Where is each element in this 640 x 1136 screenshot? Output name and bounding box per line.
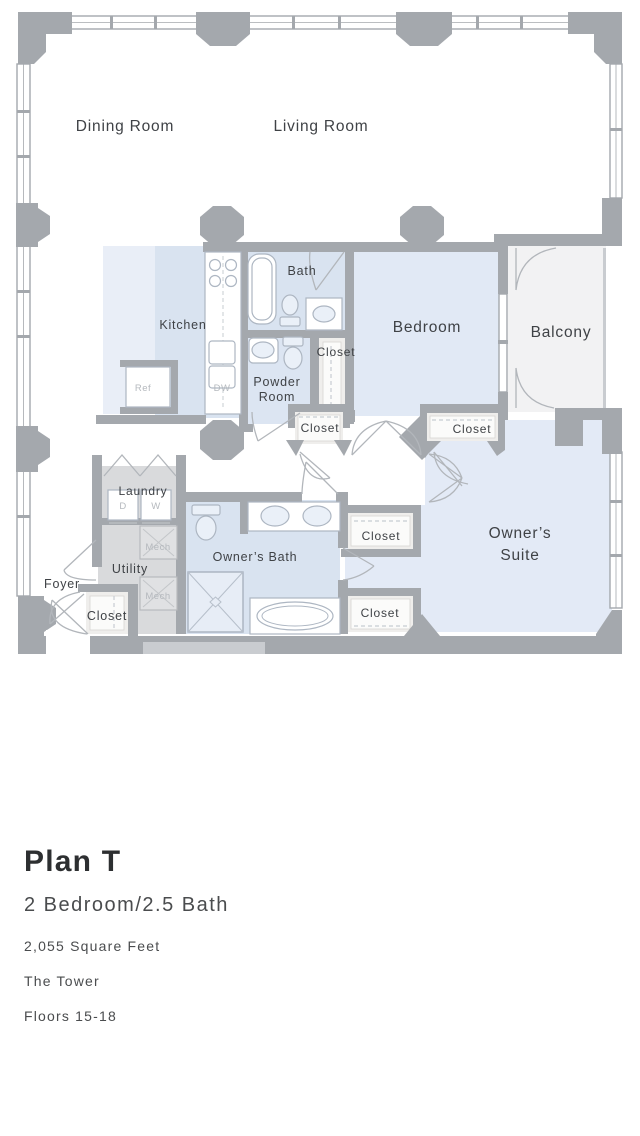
label-powder-room: Powder xyxy=(253,375,300,389)
label-dining-room: Dining Room xyxy=(76,118,174,135)
left-column-1 xyxy=(16,203,38,247)
corner-column-top-left xyxy=(18,12,72,64)
corner-column-top-right xyxy=(568,12,622,64)
toilet-tank xyxy=(192,505,220,515)
label-closet-hall: Closet xyxy=(301,421,340,435)
label-bedroom: Bedroom xyxy=(393,319,462,336)
label-mech-upper: Mech xyxy=(145,542,170,553)
label-utility: Utility xyxy=(112,562,148,576)
octagon-column-1 xyxy=(200,206,244,246)
octagon-column-3 xyxy=(200,420,244,460)
entry-door xyxy=(51,600,88,634)
stove-burner xyxy=(210,276,221,287)
label-owners-suite: Owner’s xyxy=(489,525,552,542)
top-column-1 xyxy=(196,12,250,34)
label-closet-bath: Closet xyxy=(317,345,356,359)
balcony-railing xyxy=(603,248,606,410)
label-owners-suite: Suite xyxy=(500,547,539,564)
floor-plan: Dining Room Living Room Kitchen Bath Bed… xyxy=(0,0,640,680)
label-closet-suite-lower: Closet xyxy=(361,606,400,620)
left-column-2 xyxy=(16,426,38,472)
label-owners-bath: Owner’s Bath xyxy=(213,550,298,564)
label-ref: Ref xyxy=(135,383,151,394)
label-powder-room: Room xyxy=(259,390,296,404)
label-mech-lower: Mech xyxy=(145,591,170,602)
label-living-room: Living Room xyxy=(274,118,369,135)
room-fills xyxy=(98,244,612,634)
plan-subtitle: 2 Bedroom/2.5 Bath xyxy=(24,894,229,917)
label-kitchen: Kitchen xyxy=(159,318,206,332)
owners-bath-hall-door xyxy=(302,462,338,494)
toilet xyxy=(284,347,302,369)
kitchen-sink xyxy=(209,341,235,364)
foyer-door xyxy=(64,540,96,580)
label-bath: Bath xyxy=(288,264,317,278)
corner-column-bottom-left xyxy=(18,596,44,636)
label-laundry: Laundry xyxy=(119,484,168,498)
soaking-tub xyxy=(250,598,340,634)
stove-burner xyxy=(210,260,221,271)
plan-area: 2,055 Square Feet xyxy=(24,938,229,954)
plan-title: Plan T xyxy=(24,845,229,879)
label-washer: W xyxy=(151,501,160,512)
label-dryer: D xyxy=(119,501,126,512)
floor-plan-page: Dining Room Living Room Kitchen Bath Bed… xyxy=(0,0,640,1136)
toilet-tank xyxy=(280,317,300,326)
label-closet-suite-upper: Closet xyxy=(362,529,401,543)
plan-caption: Plan T 2 Bedroom/2.5 Bath 2,055 Square F… xyxy=(24,845,229,1043)
label-closet-bedroom: Closet xyxy=(453,422,492,436)
label-balcony: Balcony xyxy=(531,324,592,341)
stove-burner xyxy=(226,260,237,271)
toilet xyxy=(282,295,298,315)
stove-burner xyxy=(226,276,237,287)
label-closet-foyer: Closet xyxy=(87,609,127,623)
label-dw: DW xyxy=(214,383,231,394)
plan-building: The Tower xyxy=(24,973,229,989)
octagon-column-2 xyxy=(400,206,444,246)
toilet-tank xyxy=(283,337,303,346)
hall-closet-door xyxy=(300,452,330,479)
label-foyer: Foyer xyxy=(44,577,80,591)
shower xyxy=(188,572,243,632)
plan-floors: Floors 15-18 xyxy=(24,1008,229,1024)
toilet xyxy=(196,516,216,540)
top-column-2 xyxy=(396,12,452,34)
wall-bottom xyxy=(18,636,622,654)
